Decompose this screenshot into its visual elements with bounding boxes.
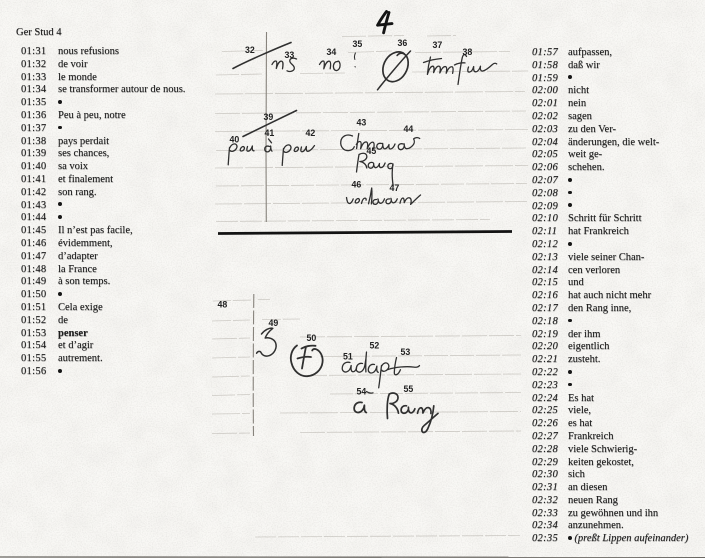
svg-text:44: 44 [404,124,414,134]
svg-text:50: 50 [307,333,317,343]
svg-text:52: 52 [370,341,380,351]
svg-text:51: 51 [343,352,353,362]
svg-text:32: 32 [245,45,255,55]
svg-text:46: 46 [352,180,362,190]
svg-text:36: 36 [398,38,408,48]
svg-text:42: 42 [306,128,316,138]
svg-text:38: 38 [463,47,473,57]
svg-text:55: 55 [404,384,414,394]
svg-text:34: 34 [327,47,337,57]
svg-text:40: 40 [230,135,240,145]
svg-text:39: 39 [264,112,274,122]
svg-text:43: 43 [357,118,367,128]
svg-text:41: 41 [265,128,275,138]
svg-text:37: 37 [433,40,443,50]
svg-text:49: 49 [269,318,279,328]
svg-text:45: 45 [367,146,377,156]
svg-text:54: 54 [357,387,367,397]
svg-text:33: 33 [285,50,295,60]
svg-text:48: 48 [218,300,228,310]
svg-text:53: 53 [401,347,411,357]
svg-text:47: 47 [390,183,400,193]
svg-text:35: 35 [353,39,363,49]
